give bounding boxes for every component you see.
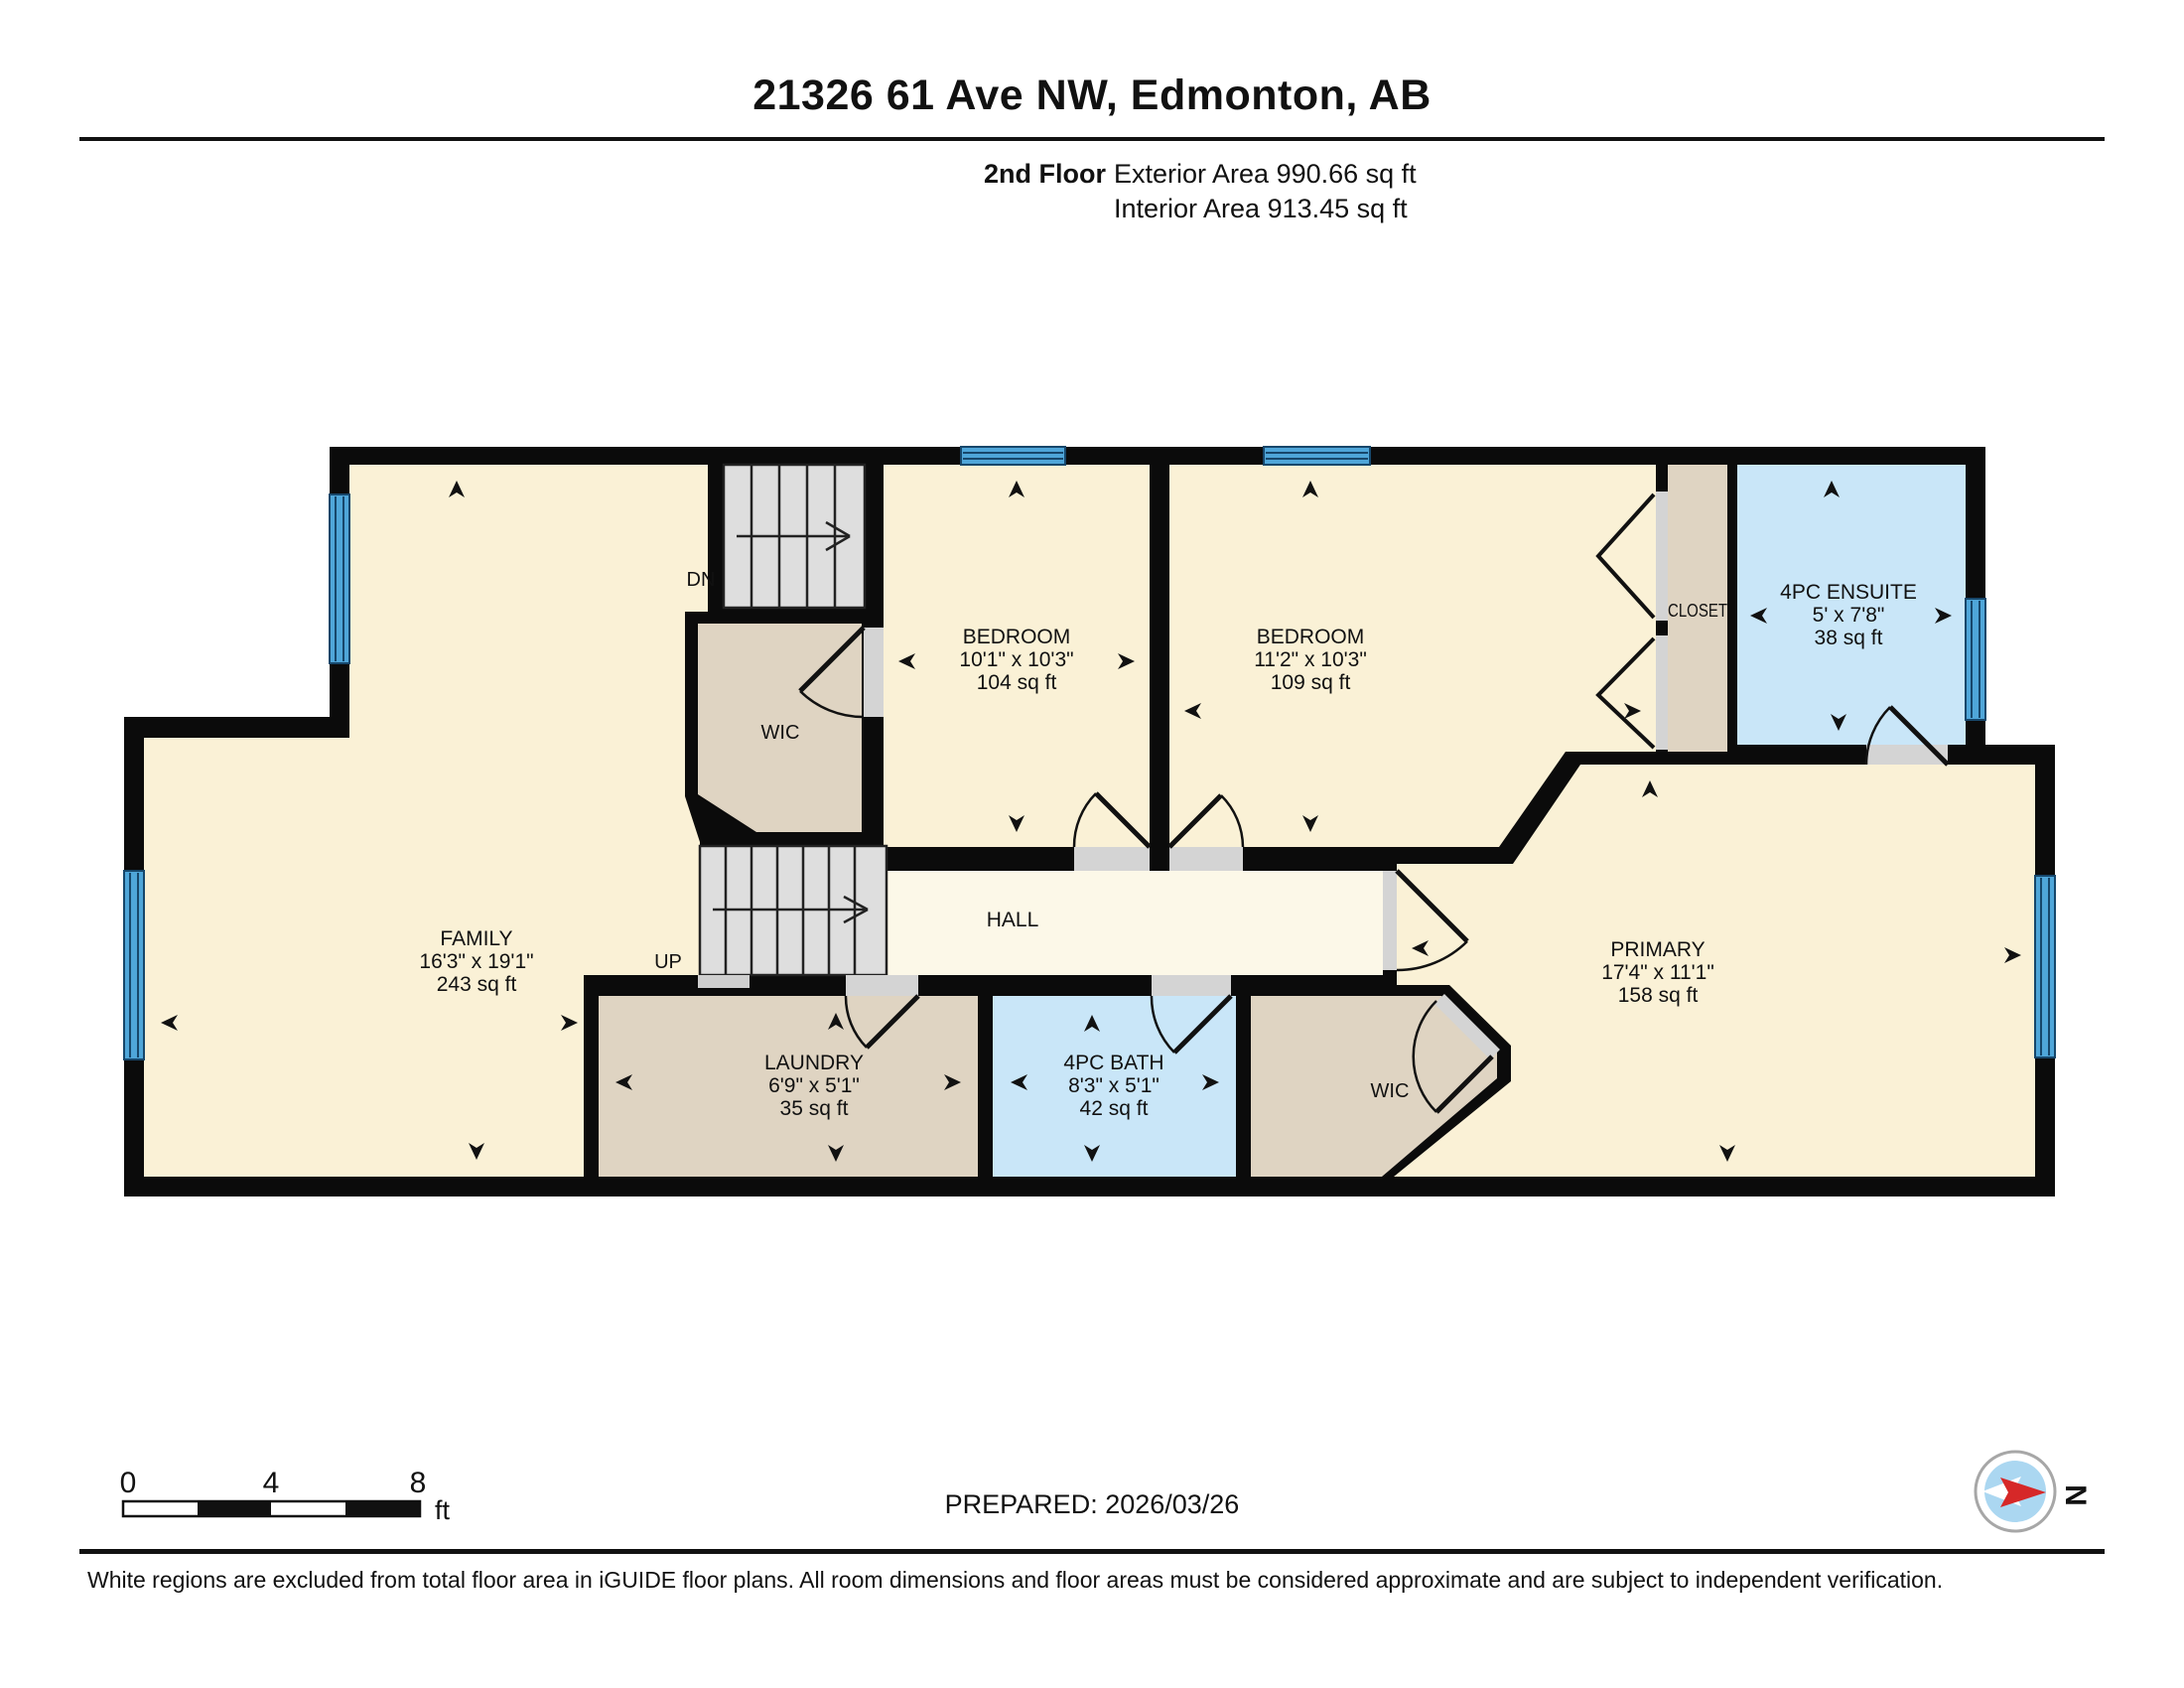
- bedroom1-area: 104 sq ft: [977, 671, 1057, 694]
- closet-name: CLOSET: [1668, 601, 1727, 621]
- family-area: 243 sq ft: [437, 973, 517, 996]
- stairs-down-label: DN: [687, 569, 716, 591]
- prepared-date: PREPARED: 2026/03/26: [0, 1489, 2184, 1520]
- window-family-upper: [330, 494, 349, 663]
- footer-disclaimer: White regions are excluded from total fl…: [87, 1567, 2122, 1594]
- window-ensuite: [1966, 599, 1985, 720]
- floorplan-page: 21326 61 Ave NW, Edmonton, AB 2nd Floor …: [0, 0, 2184, 1688]
- stairs-down: [724, 465, 865, 608]
- wic-primary-name: WIC: [1371, 1080, 1410, 1102]
- hall-name: HALL: [987, 909, 1039, 931]
- footer-divider: [79, 1549, 2105, 1554]
- bedroom1-dims: 10'1" x 10'3": [959, 648, 1073, 671]
- wic-upper-name: WIC: [761, 722, 800, 744]
- bath-name: 4PC BATH: [1063, 1052, 1163, 1074]
- floorplan-drawing: FAMILY 16'3" x 19'1" 243 sq ft BEDROOM 1…: [0, 0, 2184, 1688]
- window-bedroom2: [1264, 447, 1370, 465]
- primary-area: 158 sq ft: [1618, 984, 1699, 1007]
- bedroom2-dims: 11'2" x 10'3": [1254, 648, 1367, 671]
- stairs-up-label: UP: [654, 951, 682, 973]
- bath-dims: 8'3" x 5'1": [1068, 1074, 1160, 1097]
- stairs-up: [698, 846, 887, 988]
- ensuite-dims: 5' x 7'8": [1813, 604, 1885, 627]
- bedroom1-name: BEDROOM: [963, 626, 1071, 648]
- laundry-area: 35 sq ft: [780, 1097, 849, 1120]
- laundry-dims: 6'9" x 5'1": [768, 1074, 860, 1097]
- room-hall: [887, 871, 1383, 975]
- bedroom2-area: 109 sq ft: [1271, 671, 1351, 694]
- bath-area: 42 sq ft: [1080, 1097, 1149, 1120]
- family-dims: 16'3" x 19'1": [419, 950, 533, 973]
- bedroom2-name: BEDROOM: [1257, 626, 1365, 648]
- window-bedroom1: [961, 447, 1065, 465]
- ensuite-name: 4PC ENSUITE: [1780, 581, 1917, 604]
- ensuite-area: 38 sq ft: [1815, 627, 1883, 649]
- primary-dims: 17'4" x 11'1": [1601, 961, 1714, 984]
- laundry-name: LAUNDRY: [764, 1052, 864, 1074]
- primary-name: PRIMARY: [1610, 938, 1705, 961]
- window-primary: [2035, 876, 2055, 1057]
- family-name: FAMILY: [440, 927, 512, 950]
- window-family-lower: [124, 871, 144, 1059]
